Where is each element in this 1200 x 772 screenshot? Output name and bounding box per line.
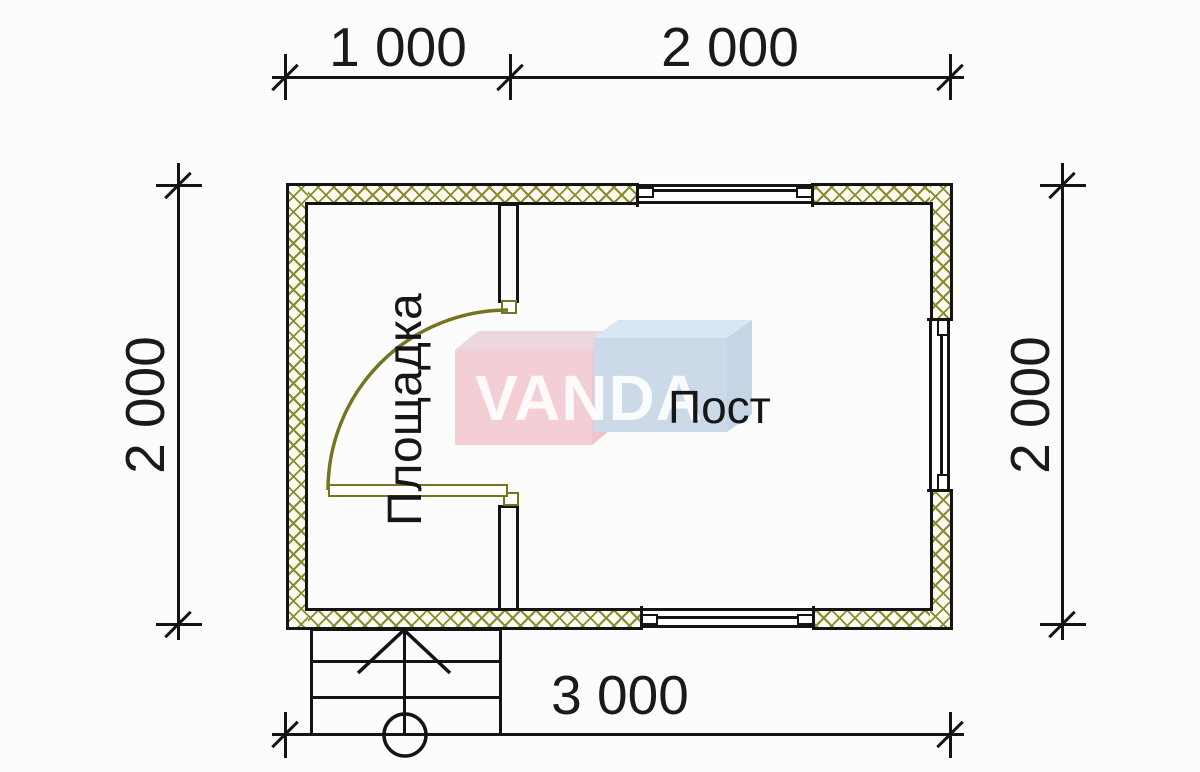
room-label-porch: Площадка xyxy=(380,296,432,526)
dimension-line-right xyxy=(1061,163,1064,640)
stair-direction-arrow xyxy=(358,630,450,673)
dimension-label-left: 2 000 xyxy=(118,320,174,490)
dimension-label-top-left: 1 000 xyxy=(313,20,483,75)
dimension-line-left xyxy=(177,163,180,640)
dimension-label-right: 2 000 xyxy=(1003,320,1059,490)
dimension-label-top-right: 2 000 xyxy=(645,20,815,75)
room-label-post: Пост xyxy=(668,384,771,430)
floor-plan-canvas: VANDA Площадка Пост 1 000 2 000 3 000 2 … xyxy=(0,0,1200,772)
dimension-label-bottom: 3 000 xyxy=(535,668,705,723)
dimension-line-bottom xyxy=(272,733,964,736)
